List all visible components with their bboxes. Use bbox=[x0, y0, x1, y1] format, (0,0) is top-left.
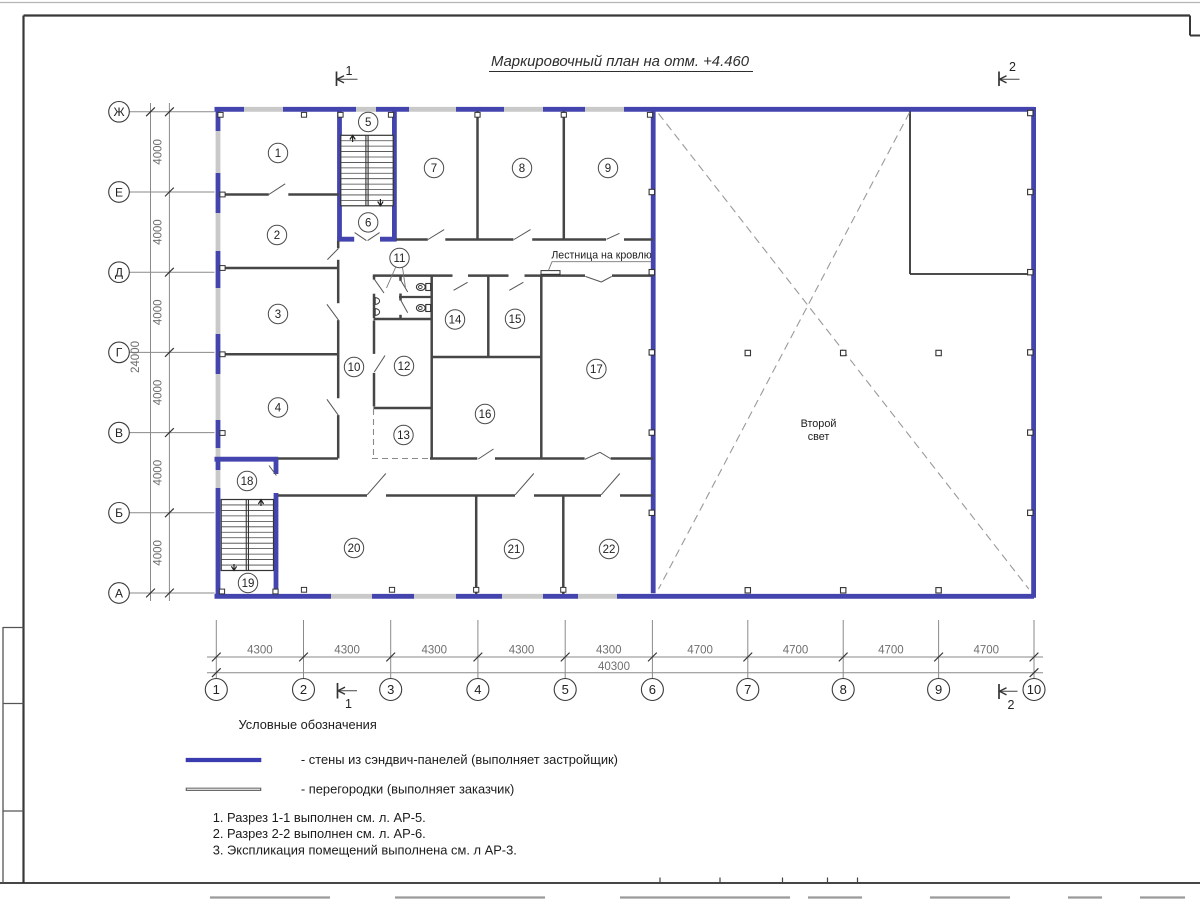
svg-text:1. Разрез 1-1 выполнен см. л.: 1. Разрез 1-1 выполнен см. л. АР-5. bbox=[213, 810, 426, 825]
svg-text:3: 3 bbox=[275, 309, 281, 321]
svg-text:свет: свет bbox=[808, 431, 830, 443]
svg-text:4300: 4300 bbox=[422, 645, 448, 657]
svg-text:4000: 4000 bbox=[153, 380, 165, 406]
svg-text:6: 6 bbox=[365, 218, 371, 230]
svg-text:4000: 4000 bbox=[153, 460, 165, 486]
svg-text:4300: 4300 bbox=[247, 645, 273, 657]
svg-text:Второй: Второй bbox=[801, 418, 837, 430]
svg-text:- стены из сэндвич-панелей (вы: - стены из сэндвич-панелей (выполняет за… bbox=[301, 752, 618, 767]
svg-text:А: А bbox=[115, 586, 123, 600]
svg-text:Ж: Ж bbox=[113, 105, 124, 119]
svg-text:Условные обозначения: Условные обозначения bbox=[239, 717, 377, 732]
svg-text:15: 15 bbox=[509, 314, 522, 326]
svg-text:4700: 4700 bbox=[974, 645, 1000, 657]
svg-text:20: 20 bbox=[348, 543, 361, 555]
svg-text:9: 9 bbox=[605, 163, 611, 175]
svg-text:5: 5 bbox=[365, 117, 371, 129]
svg-text:Г: Г bbox=[116, 346, 123, 360]
svg-text:4300: 4300 bbox=[509, 645, 535, 657]
svg-text:1: 1 bbox=[345, 697, 352, 711]
svg-text:5: 5 bbox=[562, 682, 569, 697]
svg-text:19: 19 bbox=[242, 578, 255, 590]
svg-text:2: 2 bbox=[1008, 698, 1015, 712]
svg-text:4700: 4700 bbox=[687, 645, 713, 657]
svg-text:10: 10 bbox=[1027, 682, 1041, 697]
svg-text:2: 2 bbox=[300, 682, 307, 697]
svg-text:3: 3 bbox=[387, 682, 394, 697]
svg-text:Маркировочный план на отм. +4.: Маркировочный план на отм. +4.460 bbox=[491, 54, 750, 70]
svg-text:6: 6 bbox=[649, 682, 656, 697]
svg-text:7: 7 bbox=[744, 682, 751, 697]
svg-text:1: 1 bbox=[346, 64, 353, 78]
svg-text:10: 10 bbox=[348, 362, 361, 374]
svg-text:8: 8 bbox=[519, 163, 525, 175]
svg-text:21: 21 bbox=[508, 544, 521, 556]
svg-text:4000: 4000 bbox=[153, 139, 165, 165]
svg-text:22: 22 bbox=[603, 544, 616, 556]
svg-text:14: 14 bbox=[449, 315, 462, 327]
svg-text:4700: 4700 bbox=[878, 645, 904, 657]
svg-text:- перегородки (выполняет заказ: - перегородки (выполняет заказчик) bbox=[301, 781, 514, 796]
svg-text:11: 11 bbox=[394, 253, 406, 265]
svg-text:12: 12 bbox=[398, 361, 411, 373]
svg-text:4300: 4300 bbox=[334, 645, 360, 657]
svg-text:16: 16 bbox=[479, 409, 492, 421]
svg-text:2: 2 bbox=[274, 230, 280, 242]
svg-text:Д: Д bbox=[115, 266, 123, 280]
svg-text:8: 8 bbox=[840, 682, 847, 697]
svg-text:7: 7 bbox=[431, 163, 437, 175]
svg-text:2. Разрез 2-2 выполнен см. л.: 2. Разрез 2-2 выполнен см. л. АР-6. bbox=[213, 826, 426, 841]
svg-text:4700: 4700 bbox=[783, 645, 809, 657]
svg-text:9: 9 bbox=[935, 682, 942, 697]
svg-text:18: 18 bbox=[241, 476, 254, 488]
svg-text:4: 4 bbox=[474, 682, 481, 697]
svg-text:4000: 4000 bbox=[153, 300, 165, 326]
svg-text:В: В bbox=[115, 426, 123, 440]
svg-text:1: 1 bbox=[213, 682, 220, 697]
svg-text:4: 4 bbox=[275, 403, 282, 415]
svg-text:Лестница на кровлю: Лестница на кровлю bbox=[551, 250, 651, 262]
svg-text:4000: 4000 bbox=[153, 219, 165, 245]
svg-text:2: 2 bbox=[1009, 60, 1016, 74]
svg-text:Б: Б bbox=[115, 506, 123, 520]
svg-text:40300: 40300 bbox=[598, 661, 630, 673]
svg-text:13: 13 bbox=[397, 430, 410, 442]
svg-text:17: 17 bbox=[590, 364, 603, 376]
svg-text:4000: 4000 bbox=[153, 540, 165, 566]
svg-text:1: 1 bbox=[275, 148, 281, 160]
svg-text:Е: Е bbox=[115, 185, 123, 199]
svg-text:3. Экспликация помещений выпол: 3. Экспликация помещений выполнена см. л… bbox=[213, 842, 517, 857]
svg-text:4300: 4300 bbox=[596, 645, 622, 657]
svg-text:24000: 24000 bbox=[130, 341, 142, 373]
